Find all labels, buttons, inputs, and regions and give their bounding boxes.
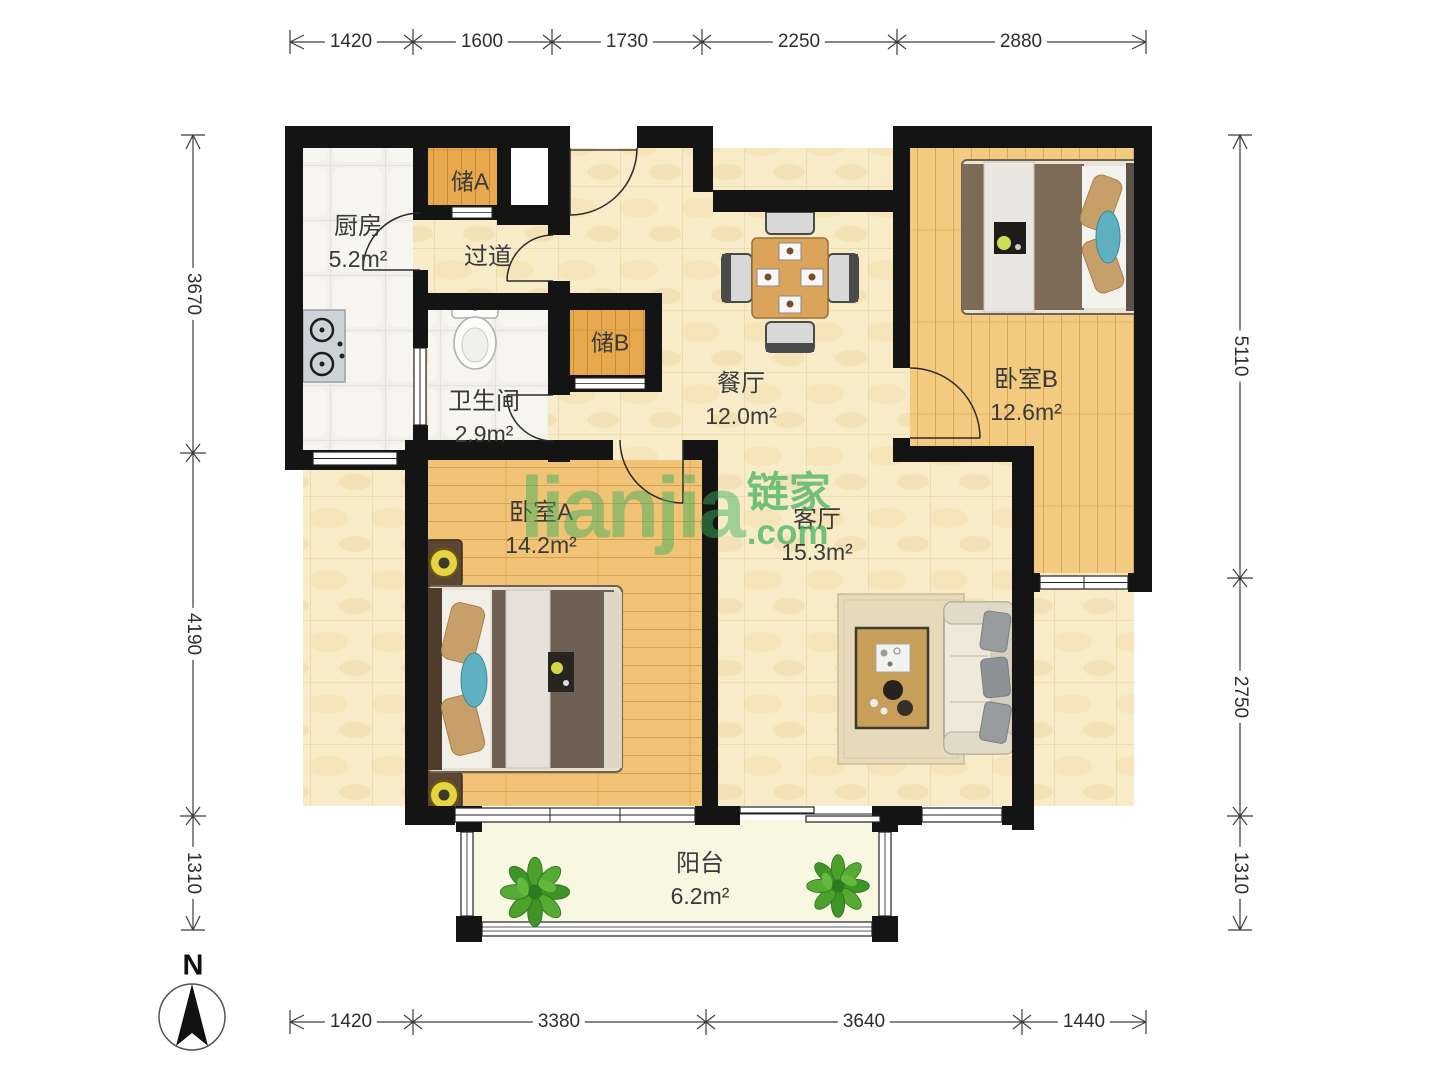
wall-segment — [405, 440, 613, 460]
wall-segment — [497, 148, 511, 208]
window — [414, 348, 426, 425]
dimension-line-left — [180, 135, 206, 930]
wall-segment — [1128, 573, 1152, 592]
lamp-center — [439, 790, 450, 801]
cup — [563, 680, 569, 686]
burner-center — [320, 328, 325, 333]
wall-segment — [1002, 806, 1034, 825]
pocket-door — [452, 207, 492, 218]
floorplan-canvas: 厨房 5.2m² 储A 过道 储B 卫生间 2.9m² 餐厅 12.0m² 卧室… — [0, 0, 1440, 1080]
wall-segment — [1012, 446, 1034, 830]
cushion — [1096, 211, 1120, 263]
bed-foot-fold — [604, 592, 622, 768]
toilet-seat — [462, 328, 488, 362]
wall-segment — [702, 445, 718, 825]
stove — [303, 310, 345, 382]
wall-segment — [1020, 573, 1040, 592]
bedroom-b-bed — [962, 160, 1138, 314]
wall-segment — [637, 126, 713, 148]
plant — [500, 857, 569, 926]
wall-segment — [285, 148, 303, 450]
quilt-runner — [506, 590, 550, 768]
sliding-door — [740, 807, 880, 822]
cup — [870, 699, 878, 707]
dimension-line-top — [290, 29, 1146, 55]
tray — [876, 644, 910, 672]
teapot — [897, 700, 913, 716]
dimension-line-right — [1227, 135, 1253, 930]
coffee-table — [856, 628, 928, 728]
cup — [881, 708, 888, 715]
cup — [888, 662, 893, 667]
bedroom-b-floor-lower — [1034, 446, 1134, 573]
wall-segment — [548, 148, 570, 235]
wall-segment — [413, 148, 428, 213]
wall-segment — [893, 148, 910, 212]
dining-chair-back — [766, 343, 814, 352]
compass — [159, 984, 225, 1050]
living-room-set — [838, 594, 1014, 764]
headboard — [426, 588, 442, 770]
sofa-cushion — [979, 610, 1011, 652]
knob — [338, 342, 343, 347]
dimension-line-bottom — [290, 1009, 1146, 1035]
wall-segment — [713, 190, 893, 212]
storage-a-floor — [428, 148, 497, 208]
wall-segment — [695, 806, 740, 825]
wall-segment — [420, 293, 660, 310]
window — [455, 808, 695, 822]
wall-segment — [893, 126, 1152, 148]
lamp-center — [439, 558, 450, 569]
flower — [997, 236, 1011, 250]
bowl — [809, 274, 816, 281]
bowl — [787, 301, 794, 308]
teapot — [883, 680, 903, 700]
wall-segment — [893, 212, 910, 368]
balcony-post — [456, 916, 482, 942]
window — [313, 452, 397, 465]
cup — [881, 650, 888, 657]
wall-segment — [285, 126, 570, 148]
knob — [340, 354, 345, 359]
flower — [551, 662, 563, 674]
wall-segment — [405, 440, 428, 825]
storage-b-floor — [567, 302, 645, 375]
pocket-door — [575, 378, 645, 389]
tray — [994, 222, 1026, 254]
floorplan-drawing — [0, 0, 1440, 1080]
wall-segment — [693, 148, 713, 192]
kitchen-floor — [303, 148, 413, 450]
bowl — [765, 274, 772, 281]
cup — [1015, 244, 1021, 250]
wall-segment — [1134, 148, 1152, 592]
plant — [807, 855, 870, 918]
cushion — [461, 653, 487, 707]
balcony-post — [872, 916, 898, 942]
window — [922, 808, 1002, 822]
window — [1040, 576, 1128, 589]
wall-segment — [405, 806, 455, 825]
sofa-cushion — [980, 657, 1011, 699]
burner-center — [320, 362, 325, 367]
dining-chair-back — [722, 254, 731, 302]
bowl — [787, 248, 794, 255]
dining-chair-back — [849, 254, 858, 302]
